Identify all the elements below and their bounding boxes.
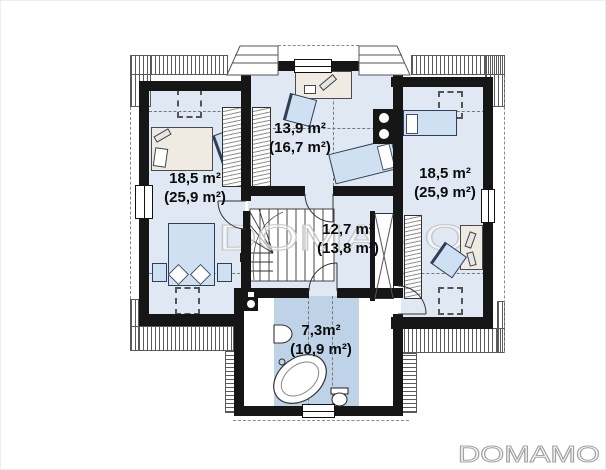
flue-icon (247, 300, 255, 308)
roof-dashed-outline-left (130, 107, 131, 299)
single-bed-icon (403, 110, 457, 136)
wall (333, 186, 393, 196)
window (294, 59, 332, 73)
pillow-icon (406, 114, 418, 134)
area-label-hall: 12,7 m² (13,8 m²) (294, 220, 402, 258)
wall (234, 298, 244, 416)
wall (393, 314, 403, 416)
window-frame (295, 66, 331, 67)
nightstand-icon (152, 263, 167, 282)
roof-dashed-outline-right (504, 77, 505, 353)
eaves-hatch-bottom-right (399, 328, 505, 353)
desk-object-icon (153, 147, 169, 168)
area-total: (25,9 m²) (397, 183, 493, 202)
area-total: (13,8 m²) (294, 239, 402, 258)
area-total: (16,7 m²) (244, 138, 356, 157)
wall (234, 406, 306, 416)
roof-dashed-outline-bottom (233, 420, 409, 421)
nightstand-icon (217, 263, 232, 282)
flue-icon (379, 113, 389, 123)
wall (248, 186, 305, 196)
skylight (175, 287, 200, 315)
area-total: (10,9 m²) (267, 340, 375, 359)
brand-logo: DOMAMO (458, 441, 600, 467)
roof-dashed-ridge-top (278, 45, 359, 46)
eaves-hatch-left-riser (130, 299, 139, 351)
floor-plan: DOMAMO (0, 0, 606, 470)
wall (331, 406, 403, 416)
flue-icon (248, 292, 254, 297)
area-total: (25,9 m²) (141, 188, 249, 207)
area-main: 18,5 m² (397, 164, 493, 183)
area-label-top-bedroom: 13,9 m² (16,7 m²) (244, 119, 356, 157)
area-main: 13,9 m² (244, 119, 356, 138)
washer-chimney-icon (244, 289, 258, 311)
stair-wall (243, 211, 250, 281)
skylight (438, 287, 463, 315)
area-main: 12,7 m² (294, 220, 402, 239)
stair-newel (240, 253, 250, 262)
window (302, 404, 335, 418)
chimney-icon (373, 109, 394, 144)
wall (391, 77, 493, 87)
desk-object-icon (304, 85, 316, 94)
wall (139, 81, 251, 91)
eaves-hatch-bath-right (401, 353, 417, 413)
area-label-right-bedroom: 18,5 m² (25,9 m²) (397, 164, 493, 202)
wall (139, 314, 244, 326)
flue-icon (379, 129, 389, 139)
area-label-bathroom: 7,3m² (10,9 m²) (267, 321, 375, 359)
area-label-left-bedroom: 18,5 m² (25,9 m²) (141, 169, 249, 207)
skylight (177, 89, 202, 118)
window-frame (303, 411, 334, 412)
area-main: 18,5 m² (141, 169, 249, 188)
wall (391, 317, 493, 329)
eaves-hatch-bottom-left (130, 326, 234, 351)
area-main: 7,3m² (267, 321, 375, 340)
wardrobe-icon (404, 215, 422, 299)
